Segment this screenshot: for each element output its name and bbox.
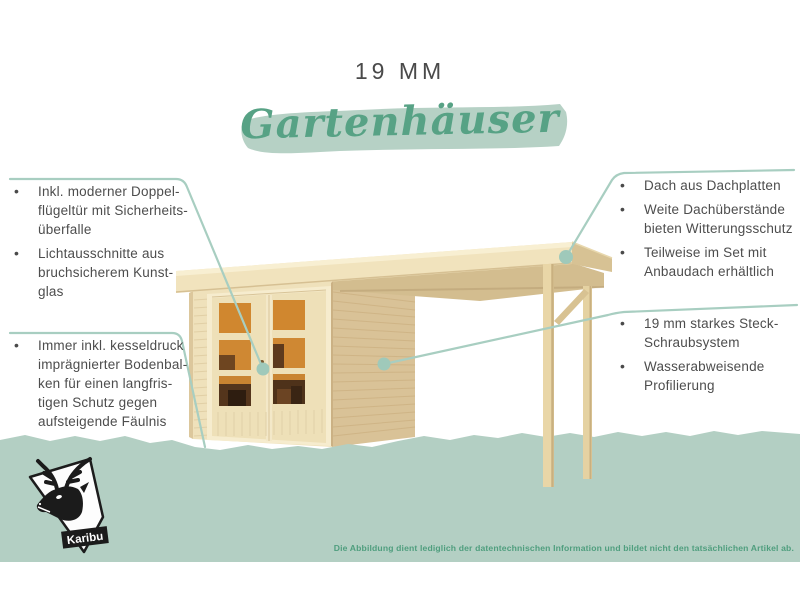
feature-line: bieten Witterungsschutz — [644, 219, 798, 238]
feature-line: bruchsicherem Kunst- — [38, 263, 208, 282]
page-title-thickness: 19 MM — [0, 58, 800, 85]
feature-line: flügeltür mit Sicherheits- — [38, 201, 208, 220]
feature-line: Inkl. moderner Doppel- — [38, 182, 208, 201]
feature-block-top-right: Dach aus Dachplatten Weite Dachüberständ… — [618, 176, 798, 286]
feature-item: Teilweise im Set mit Anbaudach erhältlic… — [618, 243, 798, 281]
feature-line: Profilierung — [644, 376, 798, 395]
bullet-dot-icon — [618, 176, 636, 195]
bullet-dot-icon — [618, 314, 636, 333]
feature-block-bottom-right: 19 mm starkes Steck- Schraubsystem Wasse… — [618, 314, 798, 400]
callout-dot-door — [257, 363, 270, 376]
feature-line: Anbaudach erhältlich — [644, 262, 798, 281]
feature-item: Immer inkl. kesseldruck imprägnierter Bo… — [12, 336, 208, 431]
bullet-dot-icon — [12, 182, 30, 201]
feature-line: überfalle — [38, 220, 208, 239]
bullet-dot-icon — [618, 243, 636, 262]
feature-line: imprägnierter Bodenbal- — [38, 355, 208, 374]
bullet-dot-icon — [618, 200, 636, 219]
feature-item: Inkl. moderner Doppel- flügeltür mit Sic… — [12, 182, 208, 239]
feature-line: Wasserabweisende — [644, 357, 798, 376]
bullet-dot-icon — [12, 244, 30, 263]
feature-line: Weite Dachüberstände — [644, 200, 798, 219]
feature-item: Dach aus Dachplatten — [618, 176, 798, 195]
disclaimer-text: Die Abbildung dient lediglich der datent… — [324, 543, 794, 553]
feature-line: Immer inkl. kesseldruck — [38, 336, 208, 355]
feature-line: tigen Schutz gegen — [38, 393, 208, 412]
feature-line: 19 mm starkes Steck- — [644, 314, 798, 333]
bullet-dot-icon — [12, 336, 30, 355]
window-pane-interior — [219, 355, 235, 370]
window-pane — [273, 300, 305, 330]
callout-dot-wall — [378, 358, 391, 371]
feature-block-top-left: Inkl. moderner Doppel- flügeltür mit Sic… — [12, 182, 208, 306]
feature-line: aufsteigende Fäulnis — [38, 412, 208, 431]
window-pane-interior-dark — [291, 386, 302, 404]
feature-line: Dach aus Dachplatten — [644, 176, 798, 195]
feature-item: Lichtausschnitte aus bruchsicherem Kunst… — [12, 244, 208, 301]
feature-item: 19 mm starkes Steck- Schraubsystem — [618, 314, 798, 352]
deer-nostril — [39, 503, 41, 505]
feature-line: Schraubsystem — [644, 333, 798, 352]
bullet-dot-icon — [618, 357, 636, 376]
callout-dot-roof — [559, 250, 573, 264]
feature-line: Teilweise im Set mit — [644, 243, 798, 262]
feature-item: Wasserabweisende Profilierung — [618, 357, 798, 395]
feature-item: Weite Dachüberstände bieten Witterungssc… — [618, 200, 798, 238]
window-pane-interior-dark — [228, 390, 246, 406]
double-door — [207, 286, 331, 446]
feature-line: glas — [38, 282, 208, 301]
feature-block-bottom-left: Immer inkl. kesseldruck imprägnierter Bo… — [12, 336, 208, 436]
corner-trim — [331, 281, 333, 447]
window-pane-interior — [273, 344, 284, 368]
feature-line: Lichtausschnitte aus — [38, 244, 208, 263]
feature-line: ken für einen langfris- — [38, 374, 208, 393]
